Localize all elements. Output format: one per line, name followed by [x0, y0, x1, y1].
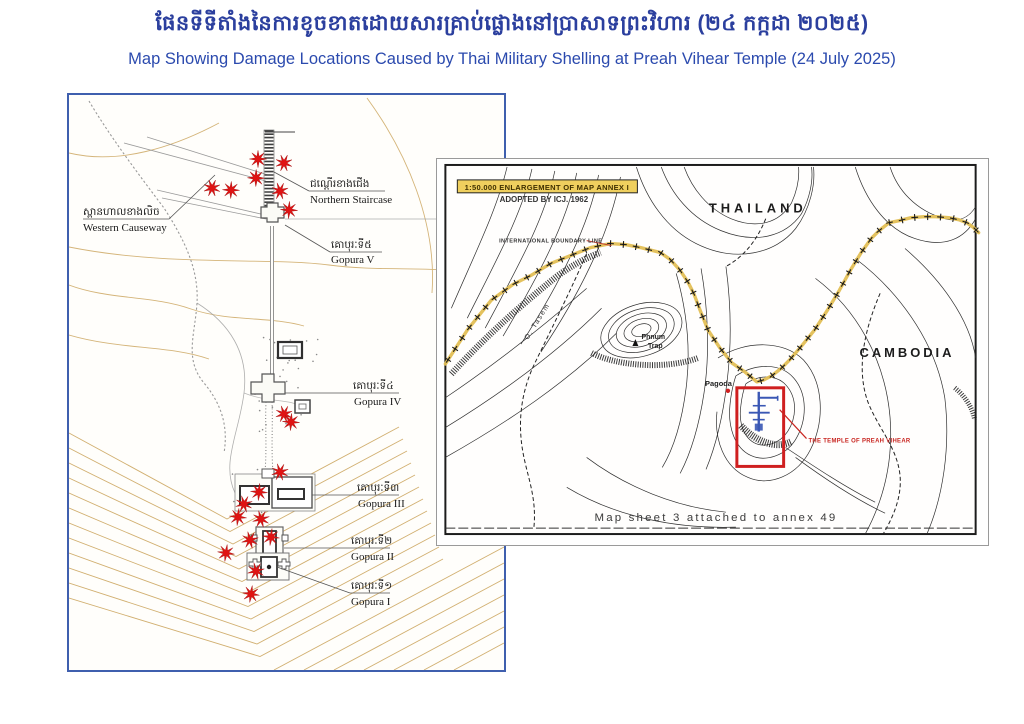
gopura-v-label-en: Gopura V: [331, 254, 375, 266]
gopura-ii-label-en: Gopura II: [351, 551, 394, 563]
phnum-label-line2: Trap: [648, 343, 663, 350]
pagoda-dot: [726, 389, 730, 393]
temple-callout-label: THE TEMPLE OF PREAH VIHEAR: [809, 439, 911, 445]
gopura-iv-annex: [295, 400, 310, 413]
damage-star: [249, 150, 266, 167]
gopura-iii-label-kh: គោបុរៈទី៣: [357, 481, 399, 495]
pagoda-label: Pagoda: [705, 379, 733, 388]
damage-star: [222, 181, 239, 198]
gopura-iv-label-kh: គោបុរៈទី៤: [353, 379, 394, 393]
gopura-i-label-en: Gopura I: [351, 596, 391, 608]
adopted-by-label: ADOPTED BY ICJ. 1962: [500, 195, 589, 204]
gopura-iii-label-en: Gopura III: [358, 498, 405, 510]
damage-star: [204, 180, 220, 196]
thailand-label: THAILAND: [709, 201, 807, 216]
phnum-label-line1: Phnum: [642, 334, 666, 341]
gopura-iv-label-en: Gopura IV: [354, 396, 401, 408]
boundary-label: INTERNATIONAL BOUNDARY LINE: [499, 239, 602, 245]
western-causeway-label-kh: ស្ពានហាលខាងលិច: [83, 205, 160, 218]
hall-structure: [278, 342, 302, 358]
page-title-english: Map Showing Damage Locations Caused by T…: [0, 50, 1024, 69]
inset-caption: Map sheet 3 attached to annex 49: [594, 512, 837, 524]
gopura-v-label-kh: គោបុរៈទី៥: [331, 238, 372, 252]
label-leaders: [83, 172, 399, 593]
temple-structures: [235, 130, 315, 580]
damage-star: [218, 545, 235, 562]
gopura-iv-structure: [251, 374, 285, 402]
scale-title: 1:50.000 ENLARGEMENT OF MAP ANNEX I: [465, 183, 629, 192]
gopura-i-label-kh: គោបុរៈទី១: [351, 579, 392, 593]
gopura-ii-label-kh: គោបុរៈទី២: [351, 534, 392, 548]
icj-inset-svg: 1:50.000 ENLARGEMENT OF MAP ANNEX I ADOP…: [437, 159, 988, 545]
damage-star: [272, 183, 288, 199]
damage-star: [276, 155, 292, 171]
western-causeway-label-en: Western Causeway: [83, 222, 167, 234]
cambodia-label: CAMBODIA: [860, 345, 955, 360]
page-title-khmer: ផែនទីទីតាំងនៃការខូចខាតដោយសារគ្រាប់ផ្លោងន…: [0, 10, 1024, 41]
page: ផែនទីទីតាំងនៃការខូចខាតដោយសារគ្រាប់ផ្លោងន…: [0, 0, 1024, 724]
northern-staircase-label-kh: ជណ្ដើរខាងជើង: [310, 177, 369, 190]
gopura-v-structure: [261, 203, 284, 222]
damage-star: [247, 169, 264, 186]
northern-staircase-label-en: Northern Staircase: [310, 194, 392, 206]
damage-star: [253, 511, 270, 528]
icj-inset-map: 1:50.000 ENLARGEMENT OF MAP ANNEX I ADOP…: [436, 158, 989, 546]
